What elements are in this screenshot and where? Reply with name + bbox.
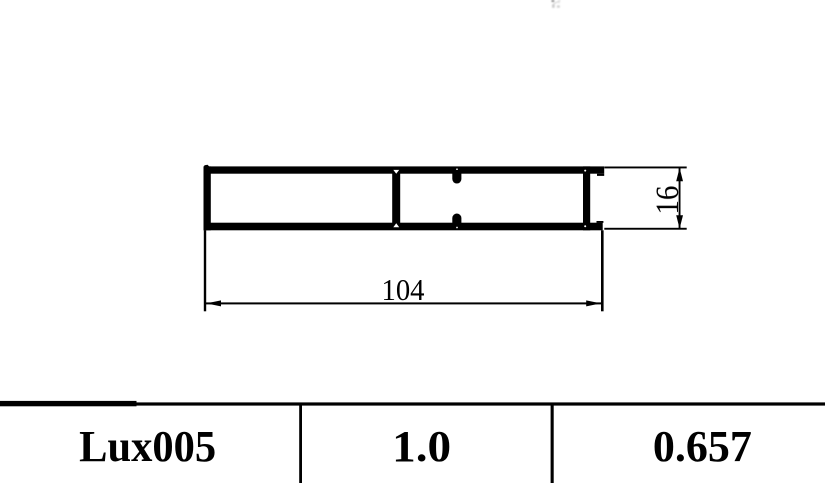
svg-text:16: 16: [650, 186, 686, 215]
svg-text:1.0: 1.0: [392, 422, 451, 471]
svg-text:104: 104: [382, 272, 425, 307]
svg-text:Lux005: Lux005: [79, 422, 216, 471]
svg-text:0.657: 0.657: [653, 422, 752, 471]
